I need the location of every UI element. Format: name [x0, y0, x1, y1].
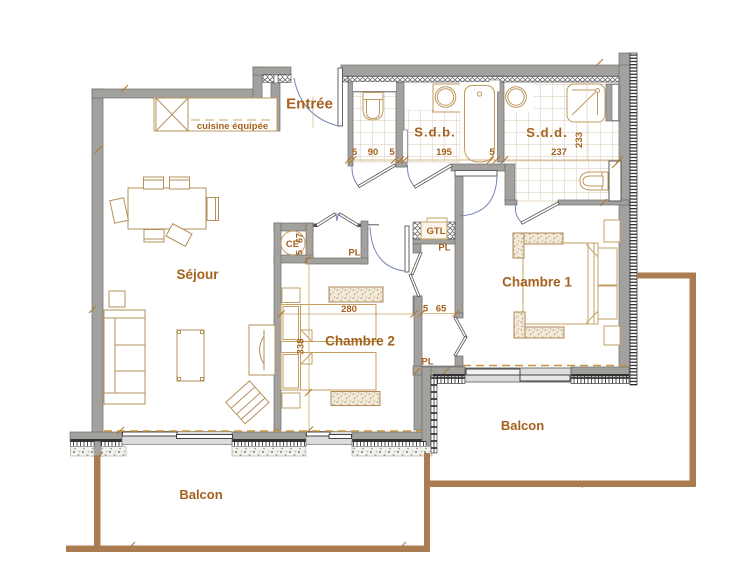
svg-text:Chambre 1: Chambre 1 [502, 275, 572, 290]
svg-text:PL: PL [438, 243, 450, 254]
svg-text:5: 5 [489, 147, 495, 158]
svg-text:GTL: GTL [427, 226, 446, 237]
svg-text:cuisine équipée: cuisine équipée [197, 121, 268, 132]
svg-text:195: 195 [436, 147, 453, 158]
svg-text:Entrée: Entrée [286, 96, 333, 113]
svg-text:280: 280 [341, 304, 357, 315]
svg-text:65: 65 [436, 304, 447, 315]
svg-text:5: 5 [389, 147, 395, 158]
svg-text:Chambre 2: Chambre 2 [325, 334, 395, 349]
svg-text:PL: PL [348, 248, 360, 259]
svg-text:5: 5 [352, 147, 358, 158]
svg-text:S.d.b.: S.d.b. [414, 125, 455, 140]
svg-text:90: 90 [368, 147, 379, 158]
svg-text:Séjour: Séjour [176, 267, 219, 282]
svg-text:S.d.d.: S.d.d. [526, 125, 567, 140]
svg-text:237: 237 [551, 147, 567, 158]
svg-text:338: 338 [296, 339, 307, 355]
svg-text:PL: PL [421, 357, 433, 368]
svg-text:Balcon: Balcon [501, 418, 544, 433]
svg-text:5: 5 [423, 304, 429, 315]
svg-text:5: 5 [295, 250, 305, 255]
svg-text:67: 67 [295, 233, 305, 243]
svg-text:233: 233 [574, 132, 585, 148]
svg-text:Balcon: Balcon [179, 487, 222, 502]
